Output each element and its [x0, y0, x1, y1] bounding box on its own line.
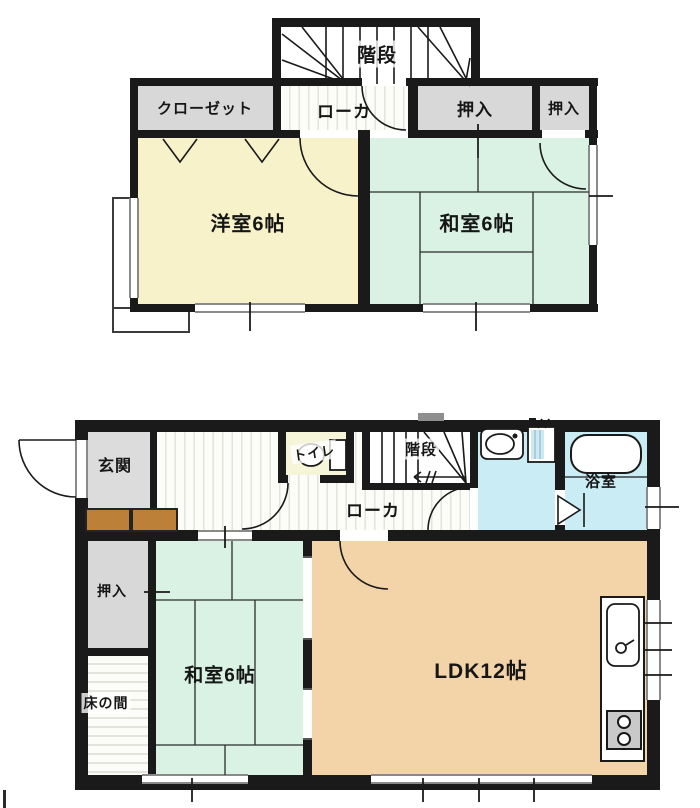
- room-label-closet-2f: クローゼット: [157, 98, 253, 119]
- fusuma-opening-upper: [303, 556, 312, 640]
- wall-segment: [362, 420, 370, 490]
- fusuma-opening-lower: [303, 688, 312, 740]
- wall-segment: [408, 130, 542, 138]
- wall-segment: [408, 78, 418, 138]
- wall-segment: [130, 78, 362, 86]
- room-label-tatami-2f: 和室6帖: [439, 208, 514, 237]
- room-label-oshiire1-2f: 押入: [457, 96, 493, 121]
- room-label-tatami-1f: 和室6帖: [184, 661, 256, 688]
- window-tatami-south-2f: [423, 303, 530, 313]
- wall-segment: [150, 432, 157, 508]
- room-tokonoma-1f: [88, 656, 148, 775]
- room-label-bathroom-1f: 浴室: [585, 471, 617, 492]
- wall-segment: [589, 245, 597, 312]
- wall-segment: [470, 420, 478, 488]
- window-ldk-south-1f: [371, 774, 592, 784]
- wall-segment: [320, 475, 354, 483]
- wall-segment: [532, 78, 540, 138]
- entrance-door-arc: [19, 440, 76, 497]
- window-tatami-south-1f: [142, 774, 248, 784]
- front-door-opening: [75, 440, 88, 498]
- entrance-step: [85, 508, 131, 532]
- wall-segment: [88, 648, 148, 656]
- wall-segment: [130, 86, 138, 198]
- washroom-door-opening: [470, 488, 478, 530]
- wall-segment: [148, 541, 156, 775]
- wall-segment: [471, 18, 480, 86]
- wall-segment: [358, 130, 370, 312]
- room-label-ldk-1f: LDK12帖: [434, 655, 528, 685]
- room-label-oshiire-1f: 押入: [97, 581, 127, 601]
- room-label-stairs-1f: 階段: [403, 439, 439, 460]
- wall-segment: [278, 475, 288, 483]
- wall-segment: [530, 304, 598, 312]
- window-tatami-east-2f: [588, 145, 598, 245]
- wall-segment: [555, 420, 565, 490]
- wall-segment: [252, 530, 340, 541]
- wall-segment: [388, 530, 647, 541]
- wall-segment: [346, 420, 354, 483]
- wall-segment: [278, 420, 286, 483]
- scan-artifact: [3, 790, 6, 808]
- vent-mark: [418, 413, 444, 421]
- wall-segment: [273, 78, 281, 138]
- sliding-door-tatami-1f: [198, 530, 252, 541]
- window-western-south-2f: [195, 303, 305, 313]
- room-label-western-2f: 洋室6帖: [210, 208, 285, 237]
- wall-segment: [130, 304, 195, 312]
- entrance-step: [131, 508, 178, 532]
- ldk-door-opening: [340, 530, 388, 541]
- window-kitchen-east: [646, 600, 661, 700]
- room-label-tokonoma-1f: 床の間: [82, 693, 131, 713]
- wall-segment: [272, 18, 480, 27]
- room-label-hallway-2f: ローカ: [317, 98, 371, 123]
- room-label-entrance-1f: 玄関: [98, 452, 132, 476]
- wall-segment: [406, 78, 598, 86]
- balcony-door-window-2f: [129, 198, 139, 298]
- window-bathroom-east: [646, 487, 661, 529]
- wall-segment: [362, 483, 470, 490]
- room-label-hallway-1f: ローカ: [346, 497, 400, 522]
- wall-segment: [272, 18, 281, 86]
- room-label-stairs-2f: 階段: [355, 41, 399, 68]
- stove-icon: [606, 710, 642, 750]
- stairs-opening-2f: [362, 78, 406, 86]
- floor-plan: 階段 クローゼット ローカ 押入 押入 洋室6帖 和室6帖 玄関 トイレ 階段 …: [0, 0, 700, 808]
- room-label-oshiire2-2f: 押入: [548, 98, 580, 119]
- room-washroom-1f: [478, 432, 555, 530]
- room-tatami-1f: [156, 541, 303, 775]
- wall-segment: [585, 130, 598, 138]
